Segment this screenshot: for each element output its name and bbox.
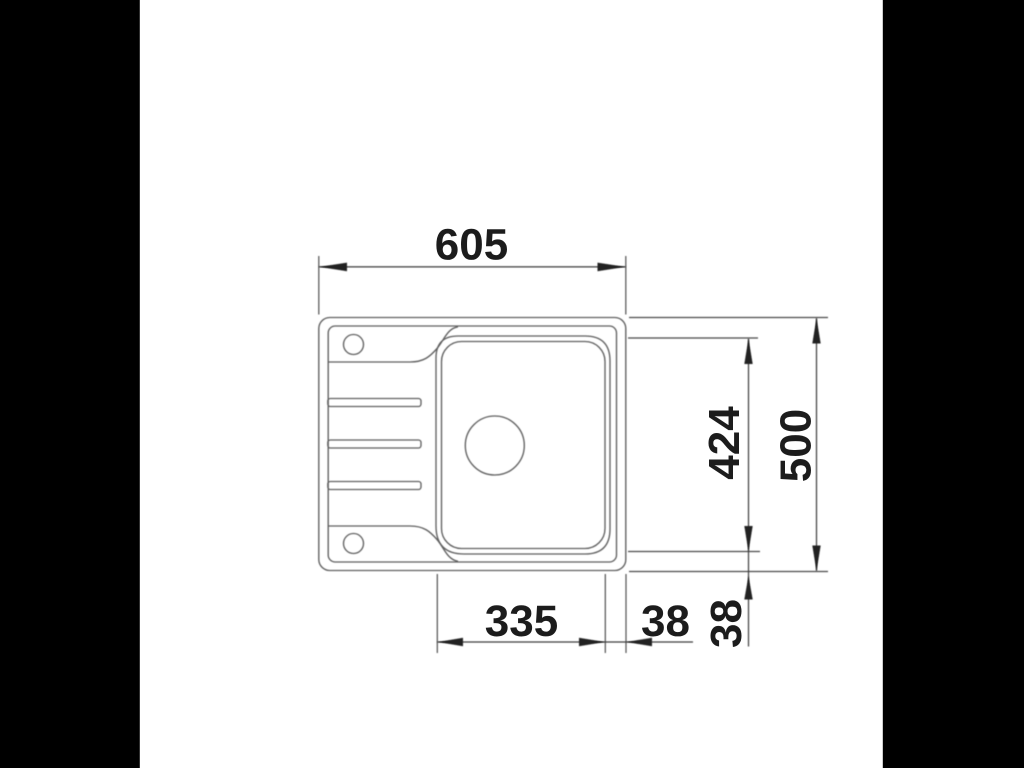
svg-text:605: 605 bbox=[435, 220, 508, 269]
svg-text:38: 38 bbox=[702, 599, 751, 648]
svg-text:424: 424 bbox=[700, 406, 749, 480]
svg-text:38: 38 bbox=[641, 597, 690, 646]
svg-text:335: 335 bbox=[485, 597, 558, 646]
svg-text:500: 500 bbox=[772, 409, 821, 482]
